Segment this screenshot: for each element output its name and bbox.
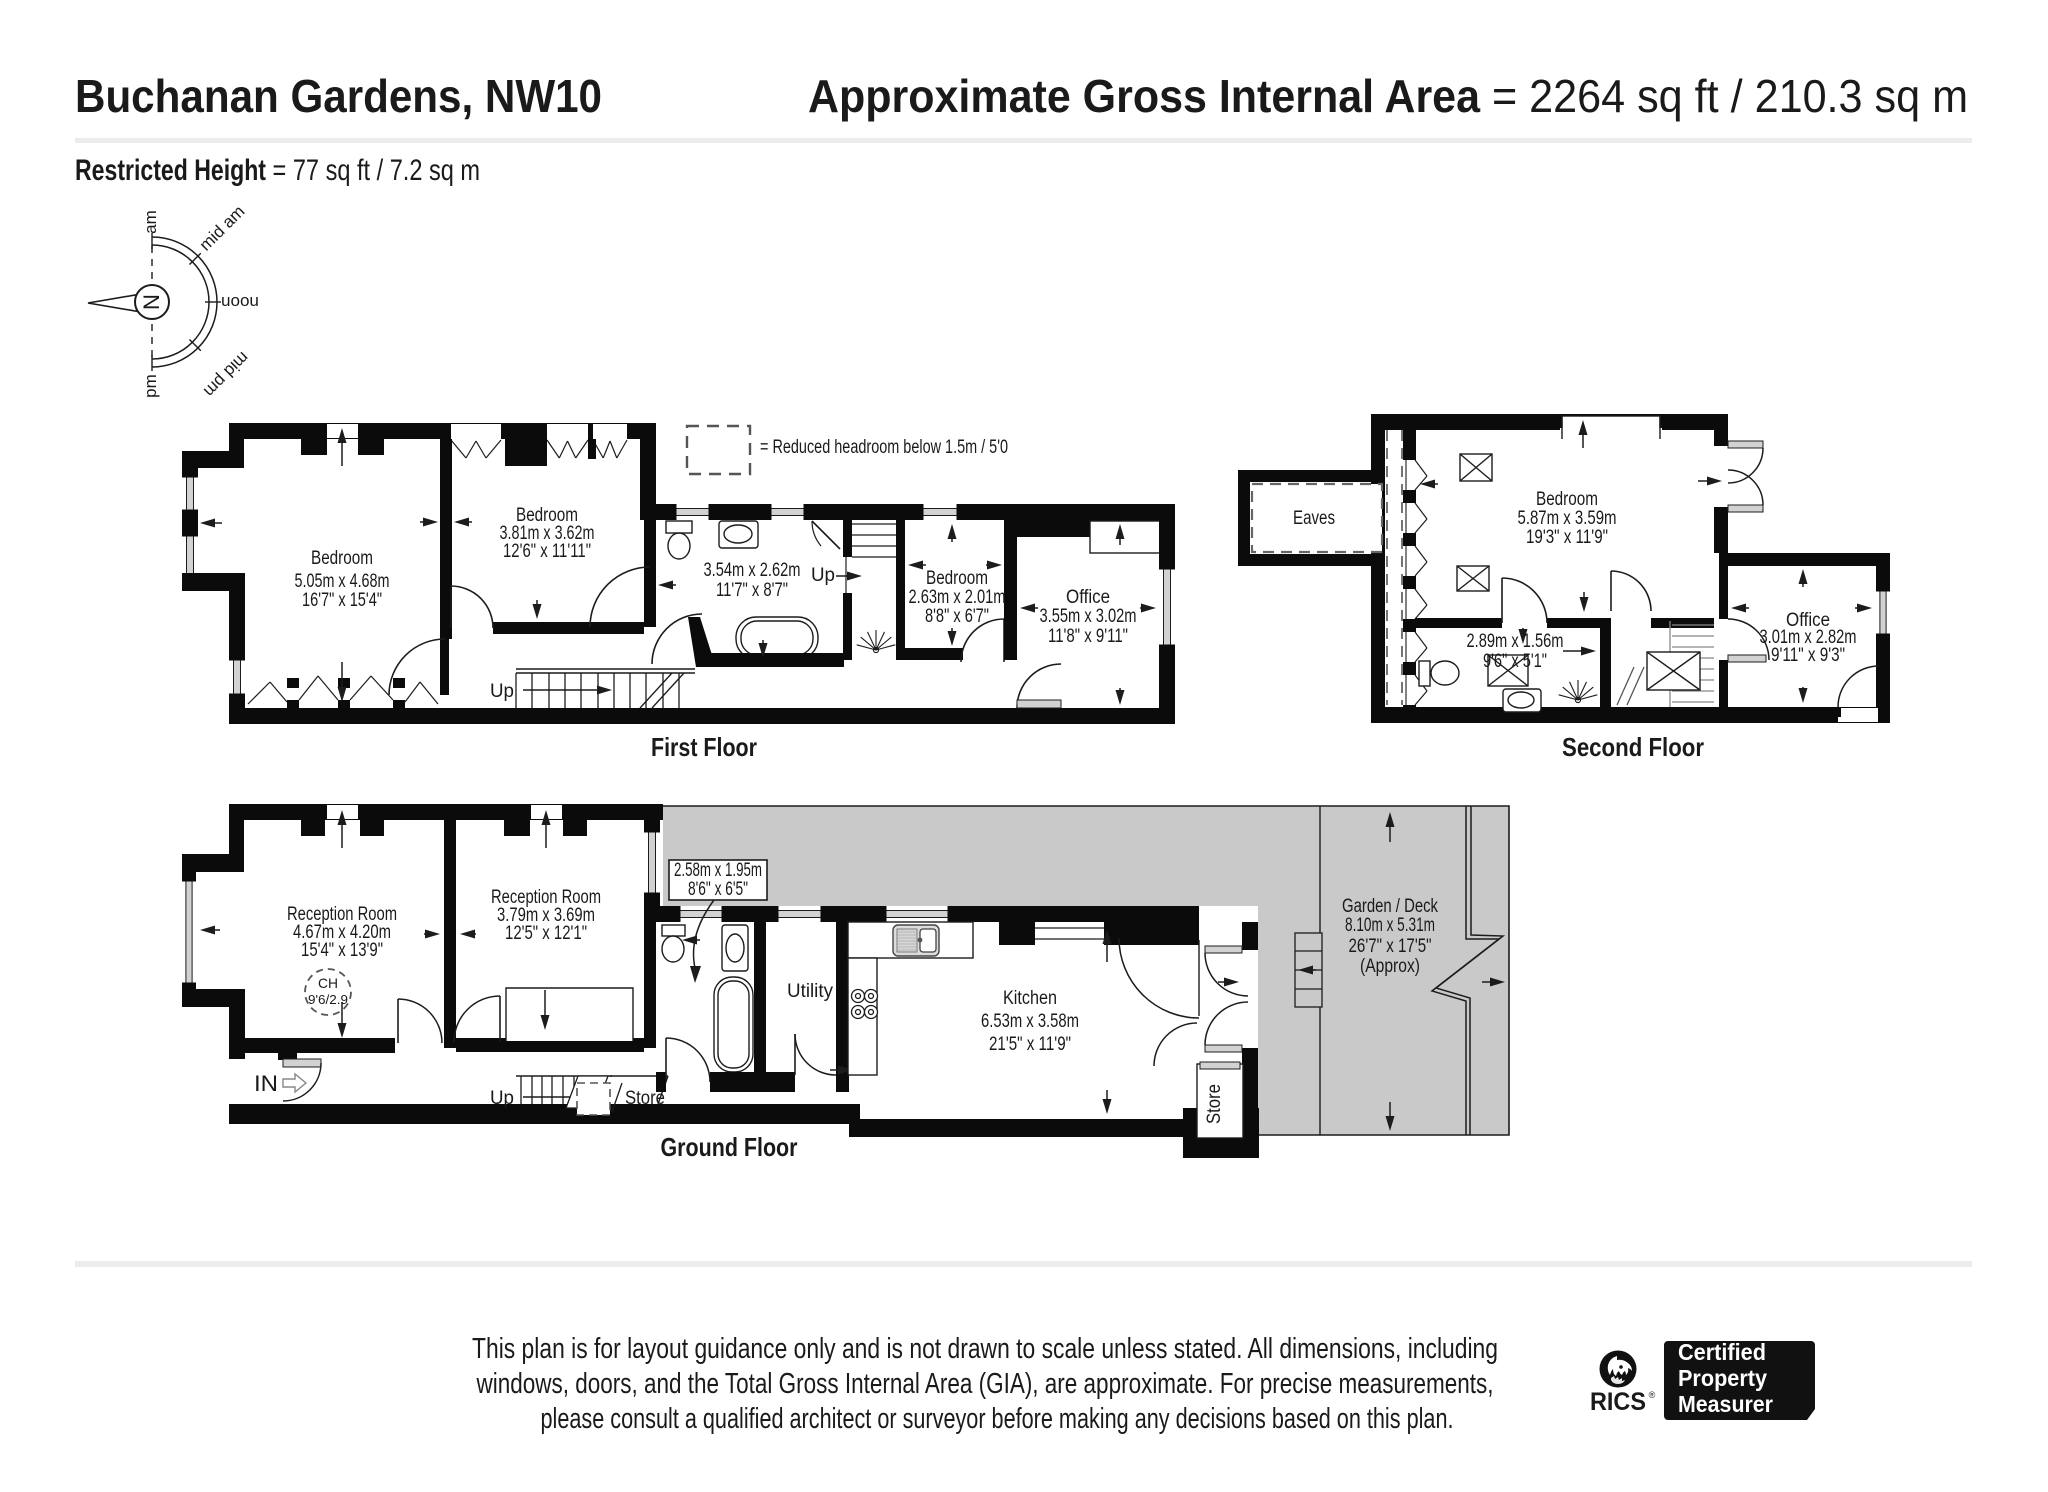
svg-text:please consult a qualified arc: please consult a qualified architect or …	[541, 1403, 1454, 1435]
svg-text:Property: Property	[1678, 1365, 1767, 1391]
svg-text:3.55m x 3.02m: 3.55m x 3.02m	[1040, 606, 1137, 627]
svg-text:8'6" x 6'5": 8'6" x 6'5"	[688, 879, 748, 900]
svg-text:am: am	[141, 210, 160, 234]
svg-text:N: N	[139, 294, 164, 310]
svg-text:19'3" x 11'9": 19'3" x 11'9"	[1526, 527, 1608, 548]
svg-text:Ground Floor: Ground Floor	[661, 1132, 798, 1162]
svg-text:This plan is for layout guidan: This plan is for layout guidance only an…	[472, 1333, 1498, 1365]
svg-text:®: ®	[1649, 1390, 1656, 1400]
svg-text:2.58m x 1.95m: 2.58m x 1.95m	[674, 860, 762, 881]
svg-text:21'5" x 11'9": 21'5" x 11'9"	[989, 1034, 1071, 1055]
svg-text:Measurer: Measurer	[1678, 1391, 1773, 1417]
svg-text:Second Floor: Second Floor	[1562, 732, 1704, 762]
svg-text:Up: Up	[490, 681, 514, 702]
svg-text:= Reduced headroom below 1.5m: = Reduced headroom below 1.5m / 5'0	[760, 437, 1008, 458]
svg-text:8'8" x 6'7": 8'8" x 6'7"	[925, 606, 989, 627]
svg-text:8.10m x 5.31m: 8.10m x 5.31m	[1345, 915, 1435, 936]
svg-text:26'7" x 17'5": 26'7" x 17'5"	[1349, 936, 1432, 957]
svg-text:9'6" x 5'1": 9'6" x 5'1"	[1483, 651, 1547, 672]
svg-text:12'6" x 11'11": 12'6" x 11'11"	[503, 541, 591, 562]
svg-text:12'5" x 12'1": 12'5" x 12'1"	[505, 923, 587, 944]
svg-text:6.53m x 3.58m: 6.53m x 3.58m	[981, 1011, 1079, 1032]
svg-text:2.63m x 2.01m: 2.63m x 2.01m	[909, 587, 1006, 608]
svg-text:Bedroom: Bedroom	[926, 568, 988, 589]
svg-text:Eaves: Eaves	[1293, 508, 1335, 529]
svg-text:5.87m x 3.59m: 5.87m x 3.59m	[1518, 508, 1617, 529]
svg-text:15'4" x 13'9": 15'4" x 13'9"	[301, 940, 383, 961]
svg-text:RICS: RICS	[1590, 1388, 1646, 1416]
svg-text:5.05m x 4.68m: 5.05m x 4.68m	[295, 571, 390, 592]
svg-text:Up: Up	[490, 1088, 514, 1109]
svg-text:Approximate Gross Internal Are: Approximate Gross Internal Area = 2264 s…	[808, 70, 1968, 122]
svg-text:Bedroom: Bedroom	[1536, 489, 1598, 510]
svg-text:Certified: Certified	[1678, 1339, 1766, 1365]
svg-text:Bedroom: Bedroom	[311, 548, 373, 569]
svg-text:9'11" x 9'3": 9'11" x 9'3"	[1771, 645, 1845, 666]
svg-text:windows, doors, and the Total: windows, doors, and the Total Gross Inte…	[476, 1368, 1494, 1400]
svg-text:Kitchen: Kitchen	[1003, 988, 1057, 1009]
svg-text:IN: IN	[254, 1071, 278, 1096]
svg-text:noon: noon	[221, 293, 259, 312]
svg-text:First Floor: First Floor	[651, 732, 757, 762]
svg-text:11'7" x 8'7": 11'7" x 8'7"	[716, 580, 788, 601]
svg-text:Restricted Height = 77 sq ft /: Restricted Height = 77 sq ft / 7.2 sq m	[75, 154, 480, 187]
svg-text:2.89m x 1.56m: 2.89m x 1.56m	[1467, 631, 1564, 652]
svg-text:Office: Office	[1066, 587, 1110, 608]
svg-text:Store: Store	[1204, 1084, 1225, 1124]
svg-text:11'8" x 9'11": 11'8" x 9'11"	[1048, 626, 1128, 647]
svg-text:Up: Up	[811, 565, 835, 586]
svg-text:(Approx): (Approx)	[1360, 956, 1420, 977]
svg-text:Utility: Utility	[787, 981, 833, 1002]
svg-text:16'7" x 15'4": 16'7" x 15'4"	[302, 590, 382, 611]
svg-text:Buchanan Gardens, NW10: Buchanan Gardens, NW10	[75, 70, 602, 122]
svg-text:Garden / Deck: Garden / Deck	[1342, 896, 1438, 917]
svg-text:pm: pm	[141, 374, 160, 398]
svg-text:3.54m x 2.62m: 3.54m x 2.62m	[704, 560, 801, 581]
svg-text:CH: CH	[318, 975, 338, 991]
